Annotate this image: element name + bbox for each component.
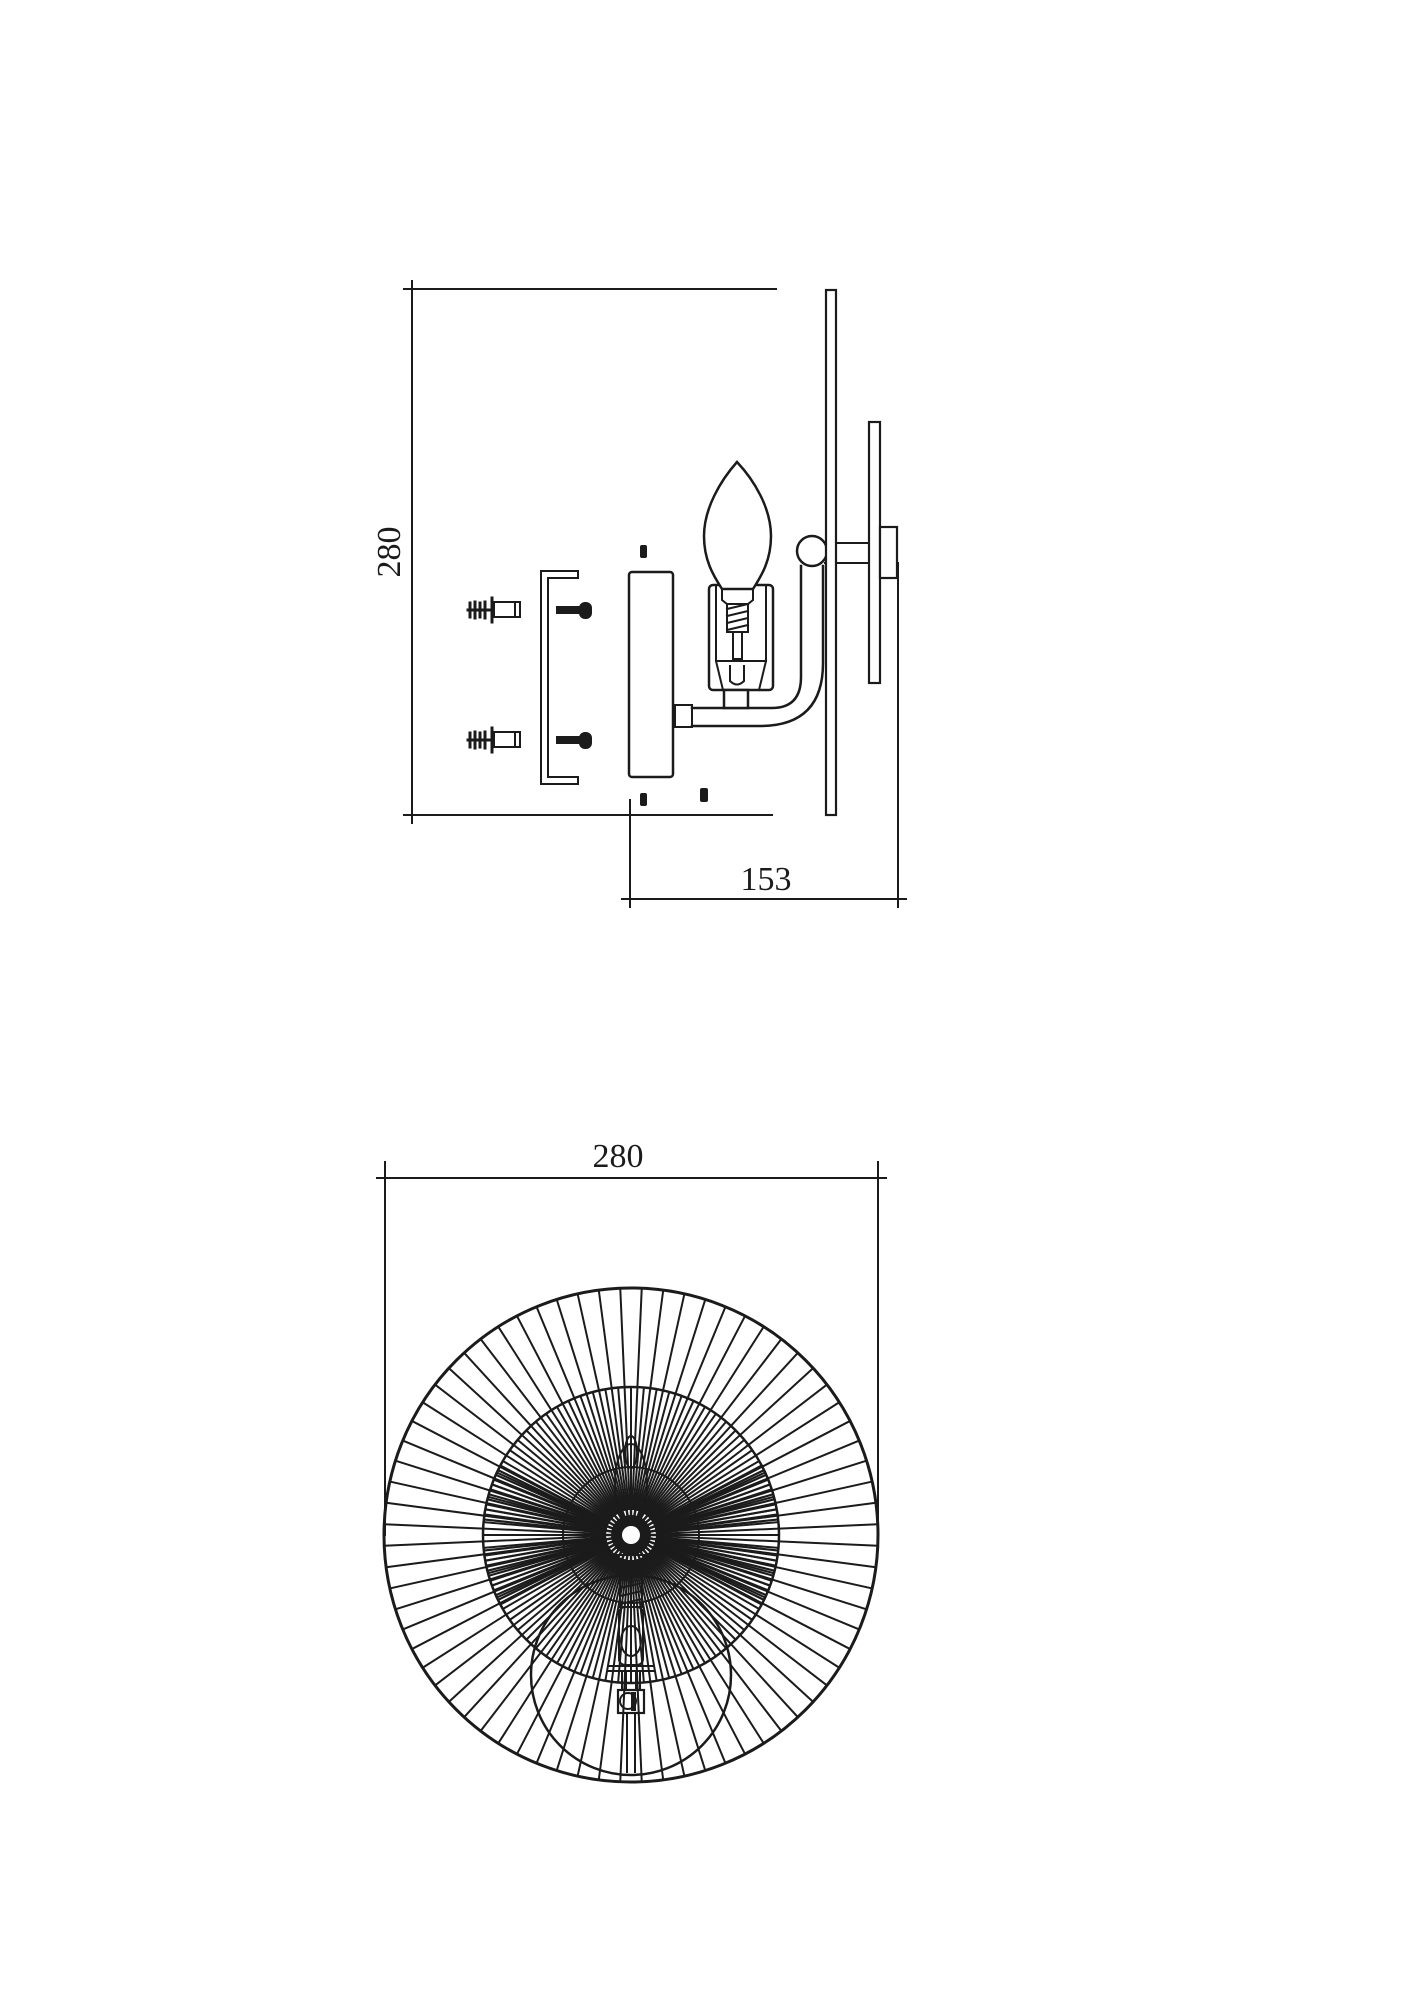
- candle-bulb-side: [704, 462, 771, 589]
- switch: [618, 1690, 644, 1713]
- centerline-tick-bottom: [640, 793, 647, 806]
- disc-shade-edge: [826, 290, 836, 815]
- wall-anchor-top: [468, 598, 520, 622]
- mounting-bracket: [541, 571, 578, 784]
- centerline-tick-socket: [700, 788, 708, 802]
- dim-width-label: 280: [593, 1138, 644, 1175]
- hub-block: [880, 527, 897, 578]
- technical-drawing: 280 153: [0, 0, 1413, 2000]
- inner-disc-edge: [869, 422, 880, 683]
- dim-height-label: 280: [371, 527, 408, 578]
- front-view: 280: [377, 1138, 886, 1782]
- ball-joint: [797, 536, 827, 566]
- arm-stub: [675, 705, 692, 727]
- dim-depth-label: 153: [741, 861, 792, 898]
- drawing-sheet: 280 153: [0, 0, 1413, 2000]
- socket-stub: [724, 690, 748, 708]
- wall-plate: [629, 572, 673, 777]
- wall-anchor-bottom: [468, 728, 520, 752]
- mounting-screw-bottom: [556, 732, 592, 749]
- centerline-tick-top: [640, 545, 647, 558]
- side-view: 280 153: [371, 281, 906, 907]
- mounting-screw-top: [556, 602, 592, 619]
- lamp-socket-side: [709, 585, 773, 708]
